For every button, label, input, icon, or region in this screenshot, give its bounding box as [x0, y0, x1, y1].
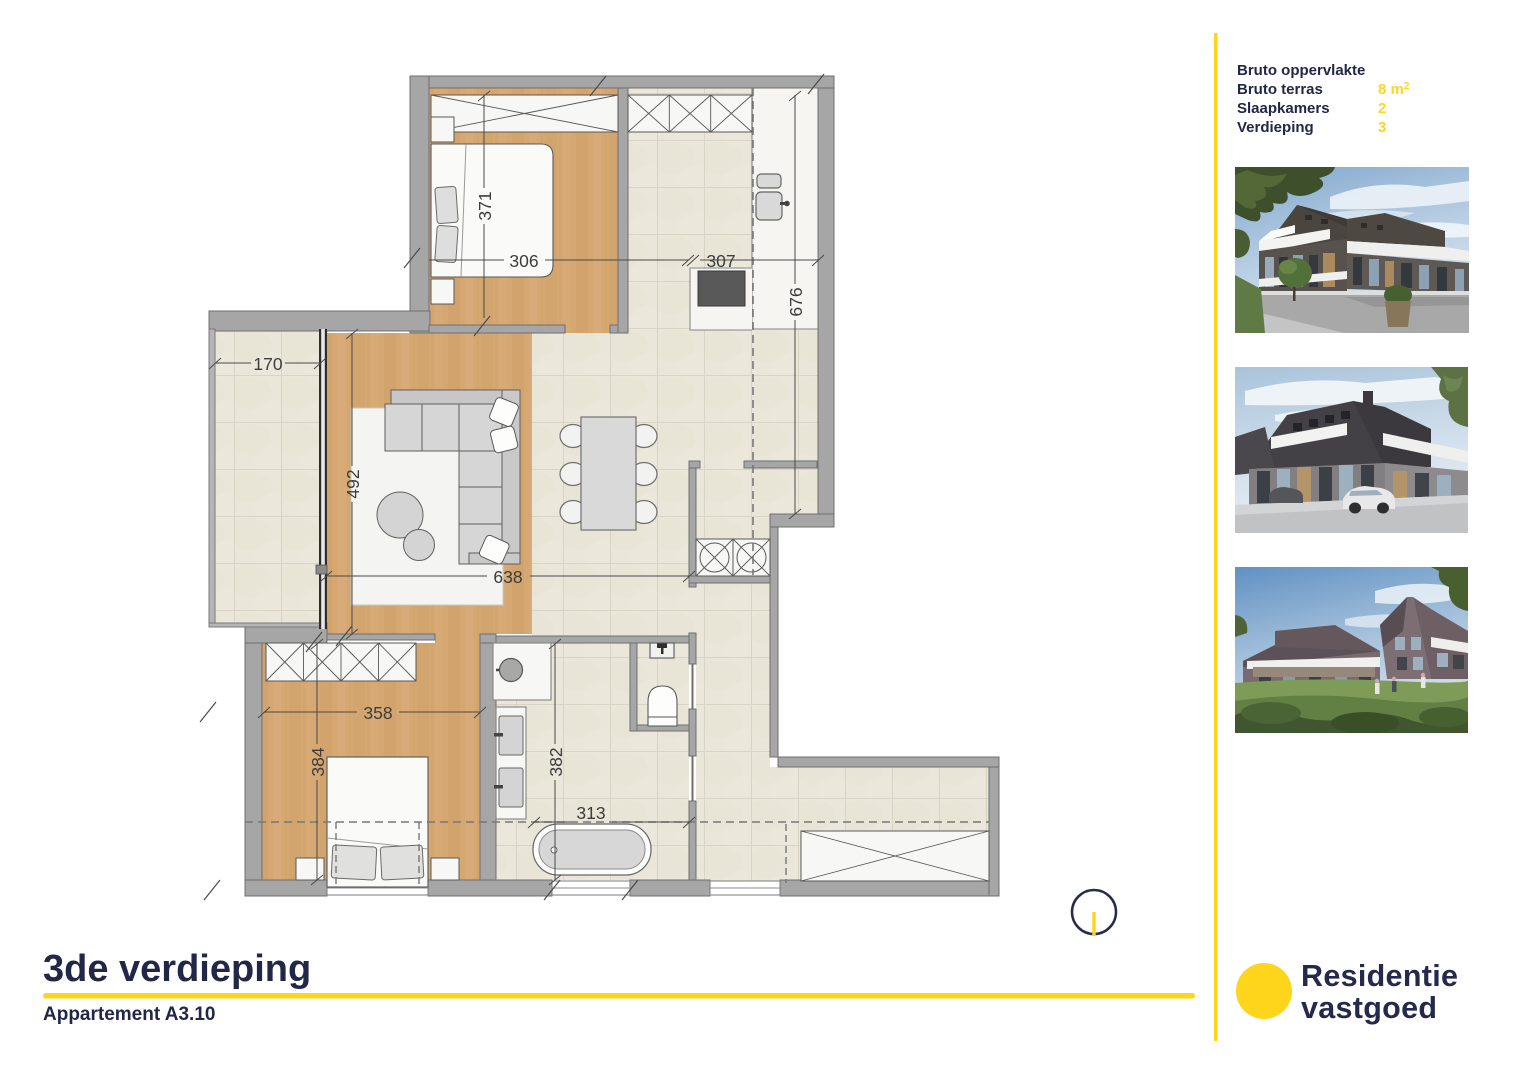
svg-text:371: 371	[475, 191, 495, 220]
svg-text:676: 676	[786, 287, 806, 316]
svg-text:vastgoed: vastgoed	[1301, 991, 1437, 1025]
svg-text:382: 382	[546, 747, 566, 776]
svg-text:Bruto terras: Bruto terras	[1237, 81, 1323, 98]
svg-text:313: 313	[576, 803, 605, 823]
svg-text:3de verdieping: 3de verdieping	[43, 948, 311, 990]
svg-text:306: 306	[509, 251, 538, 271]
svg-text:492: 492	[343, 469, 363, 498]
svg-text:638: 638	[493, 567, 522, 587]
svg-text:358: 358	[363, 703, 392, 723]
svg-text:Appartement A3.10: Appartement A3.10	[43, 1004, 215, 1025]
svg-text:Verdieping: Verdieping	[1237, 119, 1314, 136]
svg-text:Slaapkamers: Slaapkamers	[1237, 100, 1330, 117]
svg-text:Residentie: Residentie	[1301, 959, 1458, 993]
svg-text:2: 2	[1378, 100, 1386, 117]
svg-text:307: 307	[706, 251, 735, 271]
svg-text:384: 384	[308, 747, 328, 776]
svg-text:170: 170	[253, 354, 282, 374]
svg-text:Bruto oppervlakte: Bruto oppervlakte	[1237, 62, 1365, 79]
svg-text:3: 3	[1378, 119, 1386, 136]
